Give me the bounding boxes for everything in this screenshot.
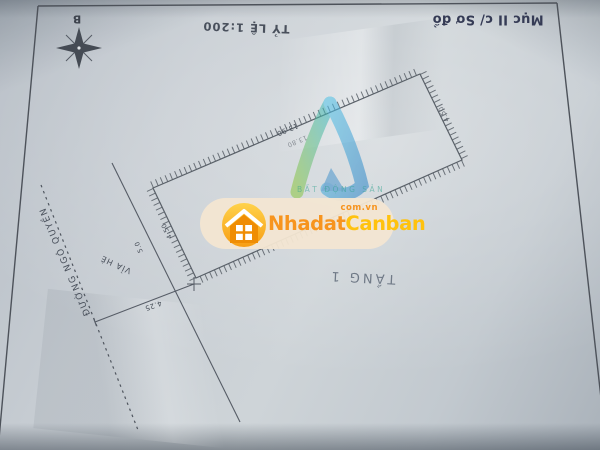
house-icon (218, 199, 270, 251)
watermark-brand-text: NhadatCanban (268, 212, 425, 235)
watermark-logo-caption: BẤT ĐỘNG SẢN (297, 185, 447, 194)
watermark-domain: com.vn (340, 203, 378, 213)
brand-part-2: Canban (345, 212, 425, 235)
watermark-brand-badge: NhadatCanban com.vn (200, 198, 394, 249)
brand-part-1: Nhadat (268, 212, 345, 235)
scanned-plot-document: Mục II c/ Sơ đồ TỶ LỆ 1:200 B TẦNG 1 ĐƯỜ… (0, 0, 600, 450)
